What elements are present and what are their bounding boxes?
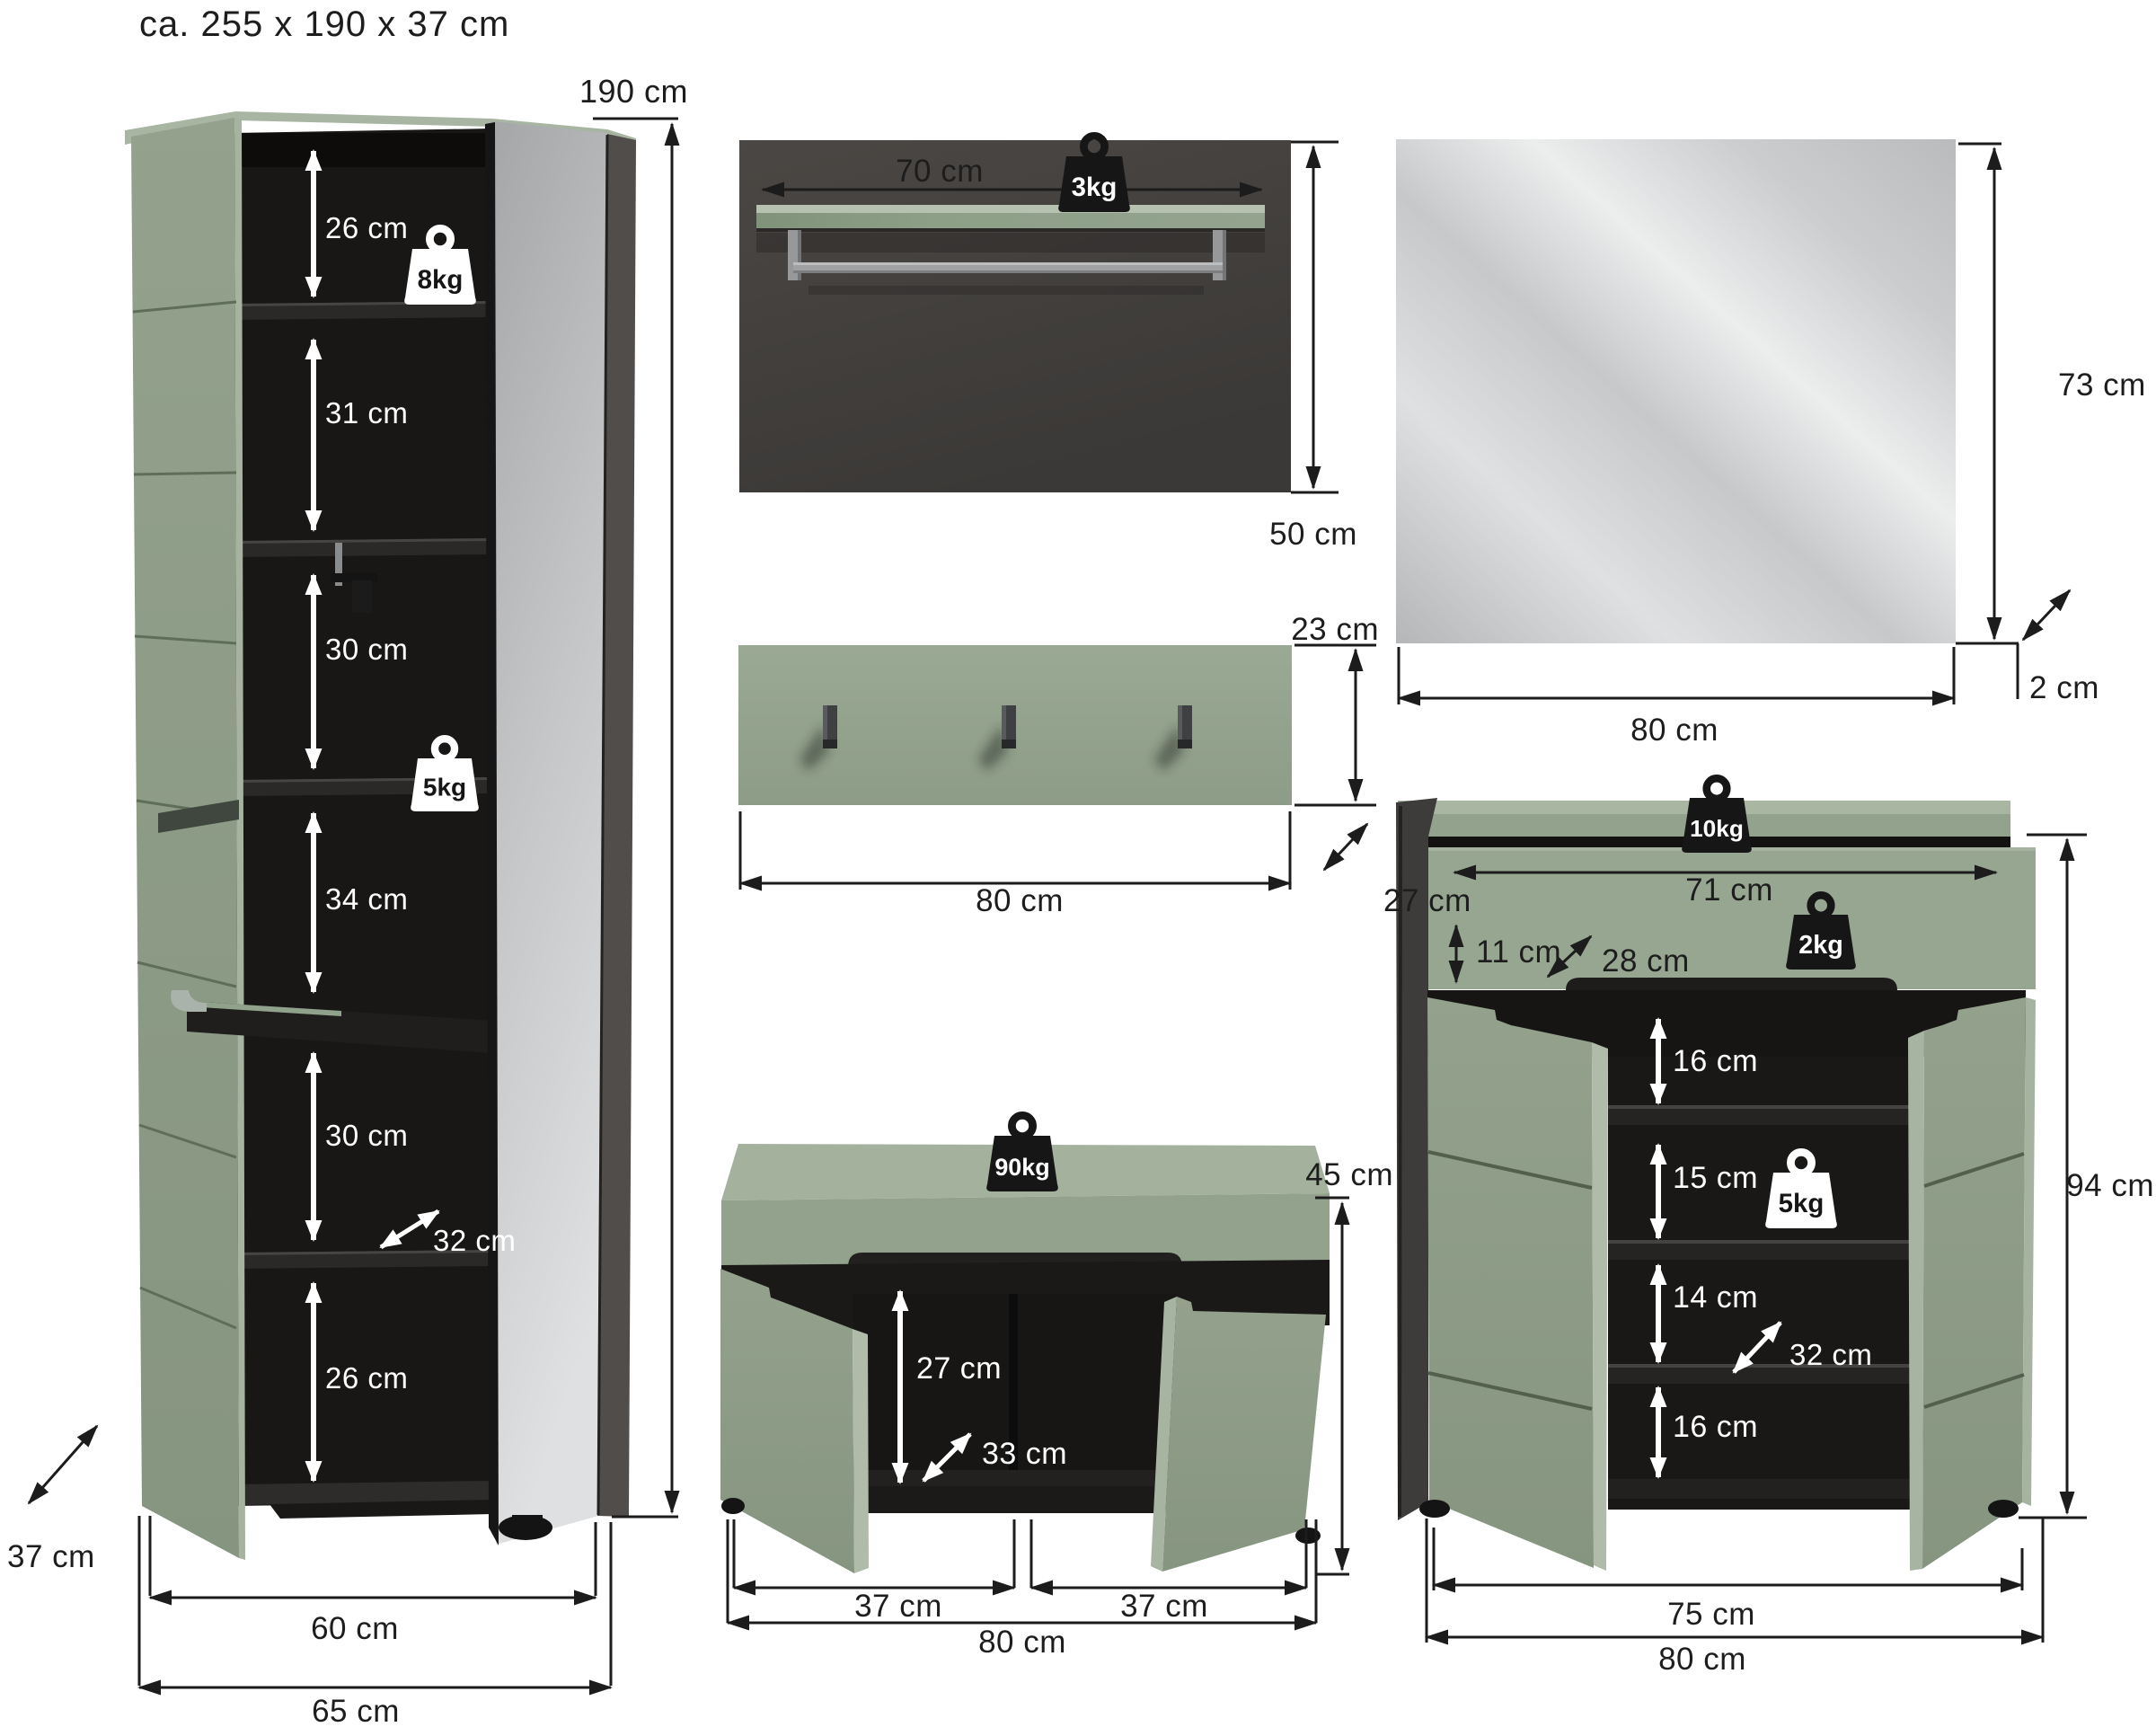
svg-text:16 cm: 16 cm bbox=[1673, 1044, 1758, 1078]
svg-text:14 cm: 14 cm bbox=[1673, 1280, 1758, 1315]
svg-text:190 cm: 190 cm bbox=[579, 73, 688, 110]
svg-text:70 cm: 70 cm bbox=[896, 154, 984, 189]
svg-text:30 cm: 30 cm bbox=[325, 633, 408, 666]
svg-text:15 cm: 15 cm bbox=[1673, 1161, 1758, 1195]
svg-text:5kg: 5kg bbox=[1779, 1189, 1825, 1218]
svg-text:2 cm: 2 cm bbox=[2029, 670, 2099, 705]
svg-text:10kg: 10kg bbox=[1690, 815, 1744, 842]
svg-text:2kg: 2kg bbox=[1798, 931, 1842, 960]
svg-text:30 cm: 30 cm bbox=[325, 1119, 408, 1152]
svg-text:80 cm: 80 cm bbox=[1658, 1642, 1746, 1677]
svg-text:73 cm: 73 cm bbox=[2058, 368, 2146, 403]
svg-text:37 cm: 37 cm bbox=[854, 1589, 942, 1624]
svg-text:60 cm: 60 cm bbox=[311, 1611, 399, 1646]
svg-text:27 cm: 27 cm bbox=[916, 1351, 1002, 1386]
svg-text:50 cm: 50 cm bbox=[1269, 517, 1357, 552]
svg-text:28 cm: 28 cm bbox=[1602, 943, 1690, 979]
svg-text:75 cm: 75 cm bbox=[1667, 1597, 1755, 1632]
svg-text:65 cm: 65 cm bbox=[312, 1694, 400, 1727]
svg-text:80 cm: 80 cm bbox=[978, 1625, 1066, 1660]
svg-text:5kg: 5kg bbox=[423, 773, 466, 801]
svg-text:32 cm: 32 cm bbox=[433, 1224, 516, 1257]
svg-text:16 cm: 16 cm bbox=[1673, 1410, 1758, 1444]
svg-text:31 cm: 31 cm bbox=[325, 396, 408, 430]
svg-text:ca. 255 x 190 x 37 cm: ca. 255 x 190 x 37 cm bbox=[139, 4, 509, 44]
svg-text:32 cm: 32 cm bbox=[1789, 1338, 1872, 1371]
svg-text:27 cm: 27 cm bbox=[1383, 883, 1471, 918]
svg-text:71 cm: 71 cm bbox=[1685, 872, 1773, 908]
svg-text:8kg: 8kg bbox=[418, 265, 464, 295]
svg-text:26 cm: 26 cm bbox=[325, 211, 408, 244]
svg-text:33 cm: 33 cm bbox=[982, 1437, 1067, 1471]
svg-text:23 cm: 23 cm bbox=[1291, 612, 1379, 647]
svg-text:37 cm: 37 cm bbox=[7, 1539, 95, 1574]
svg-text:90kg: 90kg bbox=[994, 1154, 1049, 1181]
svg-text:94 cm: 94 cm bbox=[2066, 1168, 2154, 1203]
svg-text:34 cm: 34 cm bbox=[325, 882, 408, 916]
svg-text:11 cm: 11 cm bbox=[1476, 934, 1561, 970]
svg-text:37 cm: 37 cm bbox=[1120, 1589, 1208, 1624]
svg-text:80 cm: 80 cm bbox=[1630, 713, 1719, 748]
svg-text:3kg: 3kg bbox=[1072, 173, 1118, 202]
svg-text:80 cm: 80 cm bbox=[976, 883, 1064, 918]
svg-text:45 cm: 45 cm bbox=[1305, 1157, 1393, 1192]
svg-text:26 cm: 26 cm bbox=[325, 1361, 408, 1395]
